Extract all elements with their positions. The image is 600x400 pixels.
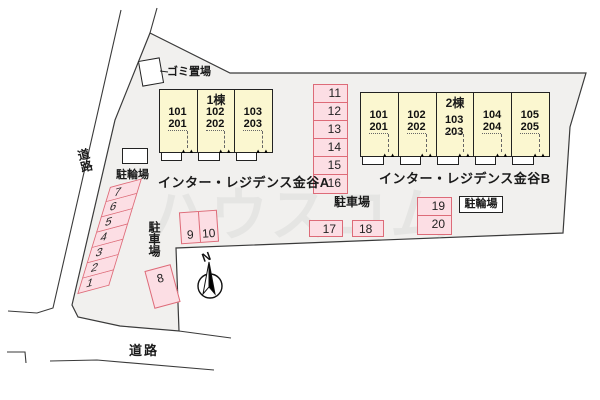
garbage-label: ゴミ置場 bbox=[167, 63, 211, 79]
site-plan: ハウスコム ゴミ置場 駐輪場 1棟 101201 102202 103203 ▲… bbox=[0, 0, 600, 400]
parking-space: 11 bbox=[314, 85, 347, 103]
bike-parking-a-box bbox=[122, 148, 148, 164]
entrance-triangles-icon: ▲▲ bbox=[494, 153, 510, 159]
bike-parking-b-label: 駐輪場 bbox=[459, 196, 503, 213]
road-bottom-label: 道路 bbox=[129, 340, 159, 359]
entrance-triangles-icon: ▲▲ bbox=[255, 149, 271, 155]
building-a-entrance-strip: ▲▲ ▲▲ ▲▲ bbox=[160, 152, 272, 161]
boundary-extension-line bbox=[150, 8, 157, 33]
car-parking-right-label: 駐車場 bbox=[334, 193, 370, 210]
unit-numbers: 102202 bbox=[198, 107, 225, 130]
unit-numbers: 104204 bbox=[474, 110, 501, 133]
building-b-entrance-strip: ▲▲ ▲▲ ▲▲ ▲▲ ▲▲ bbox=[361, 156, 549, 165]
porch bbox=[236, 152, 257, 161]
leader-line bbox=[501, 134, 502, 152]
building-b-label: インター・レジデンス金谷B bbox=[379, 168, 551, 187]
leader-line bbox=[262, 131, 263, 148]
building-b-name: 2棟 bbox=[360, 94, 550, 111]
porch bbox=[437, 156, 459, 165]
parking-space: 12 bbox=[314, 103, 347, 121]
entrance-triangles-icon: ▲▲ bbox=[532, 153, 548, 159]
parking-space-18: 18 bbox=[352, 220, 384, 237]
garbage-box bbox=[138, 57, 164, 86]
unit-numbers: 101201 bbox=[361, 110, 388, 133]
leader-line bbox=[482, 133, 501, 134]
entrance-triangles-icon: ▲▲ bbox=[218, 149, 234, 155]
porch bbox=[161, 152, 182, 161]
parking-space: 20 bbox=[418, 216, 451, 234]
leader-line bbox=[407, 133, 426, 134]
leader-line bbox=[445, 133, 464, 134]
parking-space: 10 bbox=[197, 211, 218, 242]
parking-space: 19 bbox=[418, 198, 451, 216]
porch bbox=[475, 156, 497, 165]
porch bbox=[362, 156, 384, 165]
bike-parking-a-label: 駐輪場 bbox=[116, 166, 149, 182]
leader-line bbox=[187, 131, 188, 148]
parking-stack-19-20: 19 20 bbox=[417, 197, 452, 235]
entrance-triangles-icon: ▲▲ bbox=[382, 153, 398, 159]
parking-space: 9 bbox=[180, 212, 200, 243]
leader-line bbox=[426, 134, 427, 152]
entrance-triangles-icon: ▲▲ bbox=[419, 153, 435, 159]
parking-space: 14 bbox=[314, 139, 347, 157]
unit-numbers: 102202 bbox=[399, 110, 426, 133]
porch bbox=[198, 152, 219, 161]
unit-numbers: 103203 bbox=[235, 107, 262, 130]
car-parking-left-label: 駐車場 bbox=[146, 221, 163, 271]
unit-numbers: 101201 bbox=[160, 107, 187, 130]
leader-line bbox=[463, 134, 464, 152]
leader-line bbox=[243, 130, 262, 131]
entrance-triangles-icon: ▲▲ bbox=[457, 153, 473, 159]
parking-space: 13 bbox=[314, 121, 347, 139]
leader-line bbox=[539, 134, 540, 152]
road-bottom-lower-edge-line bbox=[50, 360, 214, 370]
compass-north-label: N bbox=[200, 250, 213, 265]
parking-pair-9-10: 9 10 bbox=[179, 210, 219, 245]
unit-numbers: 103203 bbox=[437, 115, 464, 138]
parking-space-17: 17 bbox=[309, 220, 343, 237]
leader-line bbox=[206, 130, 225, 131]
leader-line bbox=[369, 133, 388, 134]
road-bottom-upper-edge-line bbox=[179, 331, 231, 338]
building-a-label: インター・レジデンス金谷A bbox=[158, 172, 330, 191]
leader-line bbox=[388, 134, 389, 152]
building-a-name: 1棟 bbox=[159, 91, 273, 108]
porch bbox=[512, 156, 534, 165]
leader-line bbox=[168, 130, 187, 131]
leader-line bbox=[520, 133, 539, 134]
crossroad-corner-line bbox=[7, 352, 26, 363]
leader-line bbox=[224, 131, 225, 148]
entrance-triangles-icon: ▲▲ bbox=[180, 149, 196, 155]
compass: N bbox=[192, 250, 232, 302]
porch bbox=[400, 156, 422, 165]
unit-numbers: 105205 bbox=[512, 110, 539, 133]
